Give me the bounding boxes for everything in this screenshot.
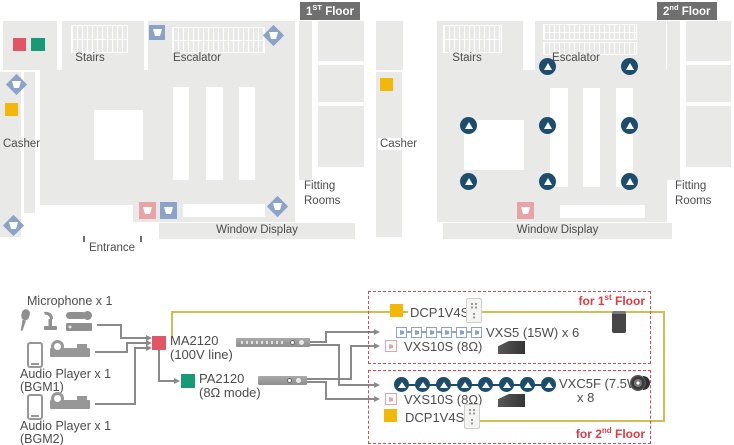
zone2-vxs10s-icon <box>385 393 397 405</box>
floor1-fixture-block <box>94 110 143 160</box>
vxc5f-chain-icon <box>415 377 430 392</box>
desk-mic-icon <box>44 312 53 320</box>
floor1-amp-room <box>3 21 57 70</box>
wire <box>350 345 352 380</box>
floor1-shelf-1 <box>173 87 189 180</box>
floor2-vxc5f-ceiling-speaker-icon <box>460 117 477 134</box>
zone2-dcp1v4s-marker-icon <box>384 409 397 422</box>
wireless-mic-icon <box>66 311 92 331</box>
floor2-vxc5f-ceiling-speaker-icon <box>539 58 556 75</box>
wire <box>97 324 121 326</box>
floor1-vxs5-wall-speaker-icon <box>160 202 177 219</box>
vxs5-chain-icon <box>396 327 407 338</box>
zone1-dcp1v4s-label: DCP1V4S <box>408 305 471 320</box>
floor2-vxc5f-ceiling-speaker-icon <box>460 173 477 190</box>
wire <box>120 337 146 339</box>
zone1-dcp1v4s-marker-icon <box>390 304 403 317</box>
floor1-fitting-label-2: Rooms <box>304 195 340 207</box>
wire <box>158 350 160 382</box>
floor1-casher-label: Casher <box>3 138 40 150</box>
audio-player-phone-icon <box>27 342 43 368</box>
floor2-vxc5f-ceiling-speaker-icon <box>621 173 638 190</box>
zone1-vxs10s-icon <box>385 340 397 352</box>
floor1-entrance-label: Entrance <box>77 242 147 254</box>
floor2-casher-label: Casher <box>378 138 419 150</box>
handheld-mic-icon <box>18 308 31 331</box>
floor2-vxc5f-ceiling-speaker-icon <box>621 58 638 75</box>
floor2-window-display-bar: Window Display <box>443 223 672 239</box>
zone2-tag: for 2nd Floor <box>570 426 645 441</box>
vxs5-chain-icon <box>471 327 482 338</box>
floor2-vxc5f-ceiling-speaker-icon <box>539 173 556 190</box>
floor2-right-room-3 <box>686 106 731 167</box>
zone2-dcp1v4s-panel-icon <box>464 404 480 429</box>
floor1-sales-floor <box>40 70 295 205</box>
bgm2-label: Audio Player x 1 <box>20 419 111 433</box>
vxc5f-chain-icon <box>520 377 535 392</box>
floor2-right-room-1 <box>686 21 731 61</box>
wire-arrow <box>174 378 180 384</box>
zone1-tag: for 1st Floor <box>570 293 645 308</box>
bgm2-sub-label: (BGM2) <box>20 432 64 445</box>
floor2-vxc5f-ceiling-speaker-icon <box>539 117 556 134</box>
floor1-vxs10s-speaker-icon <box>139 202 156 219</box>
wire <box>307 381 327 383</box>
floor1-display-window <box>183 204 265 217</box>
zone2-dcp1v4s-label: DCP1V4S <box>403 410 466 425</box>
audio-player-cd-icon <box>50 348 90 357</box>
floor2-badge: 2nd Floor <box>657 2 717 20</box>
floor1-right-room-1 <box>318 21 364 61</box>
wire <box>126 342 146 344</box>
floor1-stairs-label: Stairs <box>60 52 120 64</box>
vxs5-chain-icon <box>426 327 437 338</box>
wire <box>310 344 340 346</box>
vxc5f-chain-icon <box>436 377 451 392</box>
vxc5f-daisy-chain <box>394 377 556 392</box>
microphone-icons <box>14 306 98 341</box>
pa2120-name: PA2120 <box>199 371 244 386</box>
floor2-stairs-label: Stairs <box>437 52 497 64</box>
floor2-shelf-1 <box>550 88 568 187</box>
wire <box>134 347 136 405</box>
floor1-plan: 1ST Floor Stairs Escalator Fitting Rooms… <box>0 0 364 258</box>
floor1-window-display-bar: Window Display <box>159 223 355 239</box>
floor2-window-display-label: Window Display <box>443 224 672 236</box>
wire <box>95 403 136 405</box>
floor1-stairs-hatch <box>71 25 128 53</box>
floor1-pa2120-marker-icon <box>31 38 45 51</box>
ma2120-marker-icon <box>152 336 166 350</box>
floor1-badge: 1ST Floor <box>300 2 360 20</box>
pa2120-mode: (8Ω mode) <box>199 385 261 400</box>
wire <box>158 380 174 382</box>
vxc5f-chain-icon <box>394 377 409 392</box>
floor1-shelf-2 <box>206 87 223 180</box>
wire <box>325 331 374 333</box>
floor1-ma2120-marker-icon <box>13 38 26 51</box>
audio-player-cd-icon <box>50 400 90 409</box>
vxc5f-chain-icon <box>541 377 556 392</box>
control-line <box>663 311 665 422</box>
vxs5-chain-icon <box>441 327 452 338</box>
floor1-window-display-label: Window Display <box>159 224 355 236</box>
floor2-stairs-hatch <box>443 25 502 53</box>
vxs5-product-image <box>612 311 626 333</box>
floor1-fitting-label-1: Fitting <box>304 180 335 192</box>
vxs5-label: VXS5 (15W) x 6 <box>486 325 579 340</box>
floor1-vxs5-wall-speaker-icon <box>149 25 165 40</box>
vxc5f-qty-label: x 8 <box>577 390 594 405</box>
vxc5f-product-image <box>630 375 646 391</box>
vxs5-chain-icon <box>456 327 467 338</box>
ma2120-amp-image <box>236 338 310 347</box>
floor2-right-room-2 <box>686 65 731 102</box>
wire <box>95 351 128 353</box>
zone1-dcp1v4s-panel-icon <box>466 298 482 323</box>
floor1-right-corridor <box>299 21 312 180</box>
ma2120-name: MA2120 <box>170 333 218 348</box>
vxs5-daisy-chain <box>396 327 482 338</box>
ma2120-mode: (100V line) <box>170 347 233 362</box>
floor1-dcp1v4s-marker-icon <box>5 103 18 116</box>
floor2-fitting-label-2: Rooms <box>675 195 711 207</box>
pa2120-amp-image <box>258 376 307 385</box>
floor2-shelf-2 <box>583 88 600 187</box>
floor1-right-room-3 <box>318 106 364 167</box>
audio-player-phone-icon <box>27 394 43 420</box>
floor2-vxs10s-speaker-icon <box>517 202 534 219</box>
floor2-dcp1v4s-marker-icon <box>380 78 393 91</box>
wire <box>134 347 146 349</box>
floor2-right-corridor <box>667 21 680 180</box>
vxc5f-chain-icon <box>478 377 493 392</box>
zone1-vxs10s-label: VXS10S (8Ω) <box>404 339 482 354</box>
floor2-display-window <box>560 205 645 218</box>
floor1-right-room-2 <box>318 65 364 102</box>
bgm1-label: Audio Player x 1 <box>20 367 111 381</box>
vxc5f-chain-icon <box>499 377 514 392</box>
floor1-shelf-3 <box>239 87 255 180</box>
floor2-fitting-label-1: Fitting <box>675 180 706 192</box>
installation-diagram: 1ST Floor Stairs Escalator Fitting Rooms… <box>0 0 734 445</box>
floor2-corner-room <box>376 21 403 70</box>
pa2120-marker-icon <box>181 374 195 388</box>
floor2-vxc5f-ceiling-speaker-icon <box>621 117 638 134</box>
floor2-left-wall <box>376 72 402 237</box>
floor1-escalator-hatch <box>172 27 265 53</box>
vxc5f-chain-icon <box>457 377 472 392</box>
vxs5-chain-icon <box>411 327 422 338</box>
wire <box>325 398 374 400</box>
floor1-escalator-label: Escalator <box>162 52 232 64</box>
wire <box>307 378 352 380</box>
floor2-plan: 2nd Floor Stairs Escalator Fitting Rooms… <box>367 0 734 258</box>
floor1-left-wall <box>0 72 21 237</box>
floor2-escalator-hatch-1 <box>543 24 637 40</box>
